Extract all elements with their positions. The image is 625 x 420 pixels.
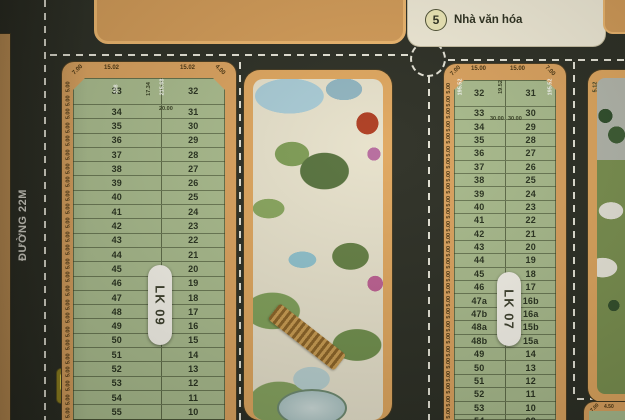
dim-label: 4.50	[604, 404, 614, 410]
side-dim-label: 5.00	[444, 271, 455, 282]
side-dimension-column: 5.005.005.005.005.005.005.005.005.005.00…	[63, 80, 73, 420]
plot-number: 21	[506, 228, 557, 240]
plot-row: 39 24	[454, 187, 556, 200]
plot-number: 52	[454, 388, 506, 400]
plot-number: 39	[73, 176, 162, 189]
side-dim-label: 5.00	[444, 95, 455, 106]
side-dim-label: 5.00	[444, 145, 455, 156]
plot-row: 42 21	[454, 228, 556, 241]
area-label: 208	[114, 84, 120, 93]
plot-row: 44 19	[454, 254, 556, 267]
side-dim-label: 5.00	[62, 381, 75, 392]
area-label: 195.52	[457, 79, 463, 96]
dim-label: 7.00	[544, 65, 557, 78]
legend-number: 5	[433, 13, 440, 27]
plot-number: 53	[73, 377, 162, 390]
plot-number: 38	[73, 162, 162, 175]
side-dim-label: 5.00	[62, 258, 75, 269]
side-dim-label: 5.00	[444, 371, 455, 382]
side-dim-label: 5.00	[62, 394, 75, 405]
pond-illustration	[277, 389, 347, 420]
plot-number: 53	[454, 402, 506, 414]
road-lane-line	[44, 0, 46, 420]
plot-number: 49	[454, 348, 506, 360]
plot-row: 34 29	[454, 120, 556, 133]
plot-number: 12	[506, 375, 557, 387]
boundary-dash-line	[239, 62, 241, 420]
dim-label: 30.00	[490, 116, 504, 122]
garden-illustration	[597, 78, 625, 394]
plot-grid-lk07: 32 31 33 30 34 29 35 28	[454, 80, 556, 420]
side-dim-label: 5.00	[444, 258, 455, 269]
plot-number: 41	[454, 214, 506, 226]
plot-number: 39	[454, 187, 506, 199]
plot-row: 36 27	[454, 147, 556, 160]
plot-number: 10	[162, 405, 225, 418]
side-dim-label: 5.00	[62, 313, 75, 324]
road-name: ĐƯỜNG 22M	[10, 165, 36, 285]
plot-number: 20	[506, 241, 557, 253]
plot-number: 29	[162, 134, 225, 147]
plot-number: 43	[454, 241, 506, 253]
plot-row: 52 13	[73, 362, 225, 376]
dim-label: 15.00	[471, 66, 486, 72]
plot-number: 25	[506, 174, 557, 186]
dim-label: 4.00	[214, 64, 227, 77]
plot-grid-lk09: 33 32 34 31 35 30 36 29	[73, 78, 225, 420]
plot-row: 35 30	[73, 119, 225, 133]
side-dim-label: 5.00	[444, 158, 455, 169]
plot-number: 51	[454, 375, 506, 387]
side-dim-label: 5.00	[62, 217, 75, 228]
garden-illustration	[253, 79, 383, 420]
plot-number: 51	[73, 348, 162, 361]
plot-row: 54 11	[73, 391, 225, 405]
plot-number: 27	[162, 162, 225, 175]
block-label-lk07: LK 07	[497, 272, 521, 346]
dim-label: 20.00	[159, 106, 173, 112]
plot-number: 55	[73, 405, 162, 418]
plot-number: 19	[506, 254, 557, 266]
dim-label: 15.02	[180, 65, 195, 71]
plot-number: 25	[162, 191, 225, 204]
plot-number: 54	[454, 415, 506, 420]
plot-number: 37	[73, 148, 162, 161]
area-label: 215.68	[159, 79, 165, 96]
plot-number: 41	[73, 205, 162, 218]
plot-number: 11	[162, 391, 225, 404]
legend-panel: 5 Nhà văn hóa	[408, 0, 605, 46]
plot-number: 43	[73, 234, 162, 247]
dim-label: 15.02	[104, 65, 119, 71]
plot-number: 13	[506, 361, 557, 373]
plot-row: 55 10	[73, 405, 225, 419]
side-dim-label: 5.00	[444, 346, 455, 357]
roundabout	[410, 41, 446, 77]
side-dim-label: 5.00	[444, 296, 455, 307]
dim-label: 19.52	[498, 80, 504, 94]
plot-number: 40	[73, 191, 162, 204]
plot-row: 54 09	[454, 415, 556, 420]
plot-number: 35	[454, 134, 506, 146]
plot-number: 26	[162, 176, 225, 189]
side-dim-label: 5.00	[444, 333, 455, 344]
side-dim-label: 5.00	[444, 171, 455, 182]
plot-row: 51 14	[73, 348, 225, 362]
park-strip	[244, 70, 392, 420]
plot-number: 23	[506, 201, 557, 213]
side-dim-label: 5.00	[62, 272, 75, 283]
plot-number: 23	[162, 219, 225, 232]
plot-row: 50 13	[454, 361, 556, 374]
plot-row: 52 11	[454, 388, 556, 401]
side-dim-label: 5.00	[444, 308, 455, 319]
adjacent-block-edge	[0, 34, 10, 420]
plot-row: 35 28	[454, 134, 556, 147]
plot-row: 41 22	[454, 214, 556, 227]
side-dim-label: 5.00	[62, 326, 75, 337]
top-land-block	[94, 0, 406, 44]
plot-number: 13	[162, 362, 225, 375]
plot-number: 29	[506, 120, 557, 132]
plot-row: 40 25	[73, 191, 225, 205]
side-dim-label: 5.00	[62, 122, 75, 133]
plot-row: 49 14	[454, 348, 556, 361]
side-dim-label: 5.00	[62, 299, 75, 310]
side-dim-label: 5.00	[444, 321, 455, 332]
corner-block-plots	[589, 411, 625, 420]
side-dim-label: 5.00	[444, 221, 455, 232]
plot-number: 11	[506, 388, 557, 400]
side-dim-label: 5.00	[62, 285, 75, 296]
plot-row: 43 22	[73, 234, 225, 248]
plot-row: 40 23	[454, 201, 556, 214]
plot-row: 33 30	[454, 107, 556, 120]
side-dim-label: 5.00	[444, 358, 455, 369]
plot-number: 14	[506, 348, 557, 360]
bridge-illustration	[268, 303, 347, 370]
side-dim-label: 5.00	[444, 383, 455, 394]
plot-number: 42	[73, 219, 162, 232]
side-dim-label: 5.00	[444, 133, 455, 144]
plot-number: 10	[506, 402, 557, 414]
side-dim-label: 5.00	[62, 81, 75, 92]
plot-number: 52	[73, 362, 162, 375]
side-dim-label: 5.00	[62, 408, 75, 419]
plot-row: 37 28	[73, 148, 225, 162]
plot-number: 42	[454, 228, 506, 240]
road-lane-line	[573, 62, 575, 400]
dim-label: 7.00	[72, 64, 85, 77]
side-dimension-column: 5.005.005.005.005.005.005.005.005.005.00…	[444, 82, 454, 420]
plot-number: 24	[162, 205, 225, 218]
plot-row: 43 20	[454, 241, 556, 254]
side-dim-label: 5.00	[62, 163, 75, 174]
dim-label: 17.34	[146, 82, 152, 96]
side-dim-label: 5.00	[444, 283, 455, 294]
block-lk09: 7.00 15.02 15.02 4.00 5.005.005.005.005.…	[62, 62, 236, 420]
plot-number: 14	[162, 348, 225, 361]
corner-block: 7.00 4.50	[584, 402, 625, 420]
plot-row: 37 26	[454, 161, 556, 174]
dim-label: 30.00	[508, 116, 522, 122]
side-dim-label: 5.00	[444, 408, 455, 419]
dim-label: 7.00	[450, 65, 463, 78]
side-dim-label: 5.00	[62, 204, 75, 215]
legend-number-badge: 5	[425, 9, 447, 31]
plot-row: 36 29	[73, 134, 225, 148]
side-dim-label: 5.00	[62, 367, 75, 378]
plot-row: 53 10	[454, 402, 556, 415]
plot-number: 38	[454, 174, 506, 186]
plot-number: 54	[73, 391, 162, 404]
side-dim-label: 5.00	[444, 108, 455, 119]
plot-row: 32 31	[454, 80, 556, 107]
block-label-lk09: LK 09	[148, 265, 172, 345]
area-label: 195.52	[547, 79, 553, 96]
side-dim-label: 5.00	[62, 136, 75, 147]
plot-number: 24	[506, 187, 557, 199]
side-dim-label: 5.00	[62, 177, 75, 188]
side-dim-label: 5.00	[62, 340, 75, 351]
plot-number: 09	[506, 415, 557, 420]
plot-row: 42 23	[73, 219, 225, 233]
top-right-block	[603, 0, 625, 34]
plot-number: 22	[162, 234, 225, 247]
plot-number: 22	[506, 214, 557, 226]
side-dim-label: 5.00	[444, 183, 455, 194]
side-dim-label: 5.00	[62, 231, 75, 242]
side-dim-label: 5.00	[444, 396, 455, 407]
plot-row: 38 25	[454, 174, 556, 187]
side-dim-label: 5.00	[62, 190, 75, 201]
road-lane-line	[50, 54, 408, 56]
plot-row: 38 27	[73, 162, 225, 176]
plot-number: 30	[162, 119, 225, 132]
side-dim-label: 5.00	[62, 149, 75, 160]
plot-number: 32	[162, 78, 225, 104]
block-lk07: 7.00 15.00 15.00 7.00 5.005.005.005.005.…	[444, 64, 566, 420]
side-dim-label: 5.00	[444, 120, 455, 131]
dim-label: 15.00	[510, 66, 525, 72]
plot-number: 44	[454, 254, 506, 266]
side-dim-label: 5.00	[444, 208, 455, 219]
side-dim-label: 5.00	[444, 83, 455, 94]
plot-number: 21	[162, 248, 225, 261]
side-dim-label: 5.00	[62, 95, 75, 106]
park-block-right: 5.12	[588, 70, 625, 402]
plot-number: 27	[506, 147, 557, 159]
plot-number: 26	[506, 161, 557, 173]
plot-row: 34 31	[73, 105, 225, 119]
plot-row: 39 26	[73, 176, 225, 190]
plot-number: 34	[73, 105, 162, 118]
road-lane-line	[448, 59, 625, 61]
plot-row: 51 12	[454, 375, 556, 388]
road-name-label: ĐƯỜNG 22M	[17, 189, 29, 261]
plot-map: 5 Nhà văn hóa ĐƯỜNG 22M 7.00 15.02 15.02…	[0, 0, 625, 420]
side-dim-label: 5.00	[444, 246, 455, 257]
side-dim-label: 5.00	[62, 109, 75, 120]
plot-number: 50	[454, 361, 506, 373]
plot-number: 36	[454, 147, 506, 159]
plot-number: 40	[454, 201, 506, 213]
plot-row: 41 24	[73, 205, 225, 219]
side-dim-label: 5.00	[62, 353, 75, 364]
road-lane-line	[428, 76, 430, 420]
plot-number: 28	[506, 134, 557, 146]
side-dim-label: 5.00	[444, 233, 455, 244]
plot-number: 28	[162, 148, 225, 161]
plot-number: 34	[454, 120, 506, 132]
legend-label: Nhà văn hóa	[454, 14, 522, 26]
side-dim-label: 5.00	[444, 196, 455, 207]
plot-number: 37	[454, 161, 506, 173]
side-dim-label: 5.00	[62, 245, 75, 256]
plot-number: 12	[162, 377, 225, 390]
plot-row: 44 21	[73, 248, 225, 262]
plot-row: 53 12	[73, 377, 225, 391]
plot-number: 36	[73, 134, 162, 147]
plot-number: 35	[73, 119, 162, 132]
plot-number: 44	[73, 248, 162, 261]
